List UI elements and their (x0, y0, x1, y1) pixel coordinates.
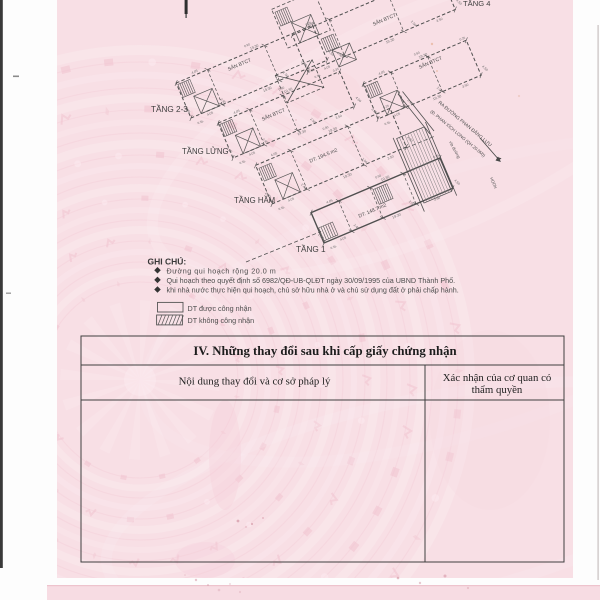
svg-text:TẦNG HẦM: TẦNG HẦM (234, 195, 275, 205)
svg-text:DT không công nhận: DT không công nhận (188, 316, 255, 325)
svg-text:GHI CHÚ:: GHI CHÚ: (148, 256, 187, 267)
svg-text:TẦNG 1: TẦNG 1 (296, 244, 326, 254)
svg-text:DT được công nhận: DT được công nhận (188, 304, 252, 313)
svg-text:Xác nhận của cơ quan có: Xác nhận của cơ quan có (443, 372, 552, 384)
svg-text:TẦNG 2-3: TẦNG 2-3 (151, 104, 188, 114)
svg-text:Đường qui hoạch rộng 20.0 m: Đường qui hoạch rộng 20.0 m (167, 266, 277, 275)
svg-text:Qui hoạch theo quyết định số 6: Qui hoạch theo quyết định số 6982/QĐ-UB-… (167, 276, 456, 285)
svg-text:IV. Những thay đổi sau khi cấp: IV. Những thay đổi sau khi cấp giấy chứn… (193, 344, 456, 358)
svg-text:TẦNG 4: TẦNG 4 (463, 0, 490, 8)
svg-text:TẦNG LỬNG: TẦNG LỬNG (182, 146, 229, 156)
svg-text:Nội dung thay đổi và cơ sở phá: Nội dung thay đổi và cơ sở pháp lý (179, 376, 331, 388)
svg-text:khi nhà nước thực hiện qui hoạ: khi nhà nước thực hiện qui hoạch, chủ sở… (167, 286, 459, 295)
svg-text:thẩm quyền: thẩm quyền (472, 384, 523, 396)
